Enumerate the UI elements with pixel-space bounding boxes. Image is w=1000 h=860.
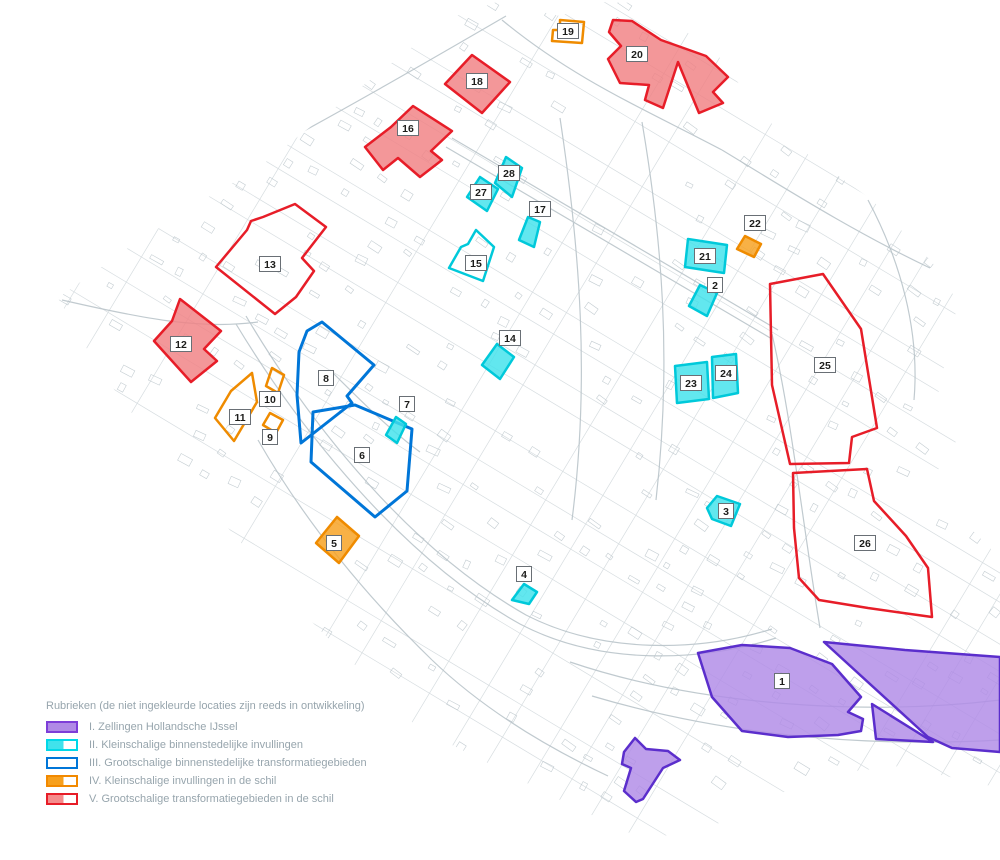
zone-20-shape <box>608 20 728 113</box>
zone-label-22: 22 <box>745 216 766 231</box>
zone-label-15: 15 <box>466 256 487 271</box>
zone-17-shape <box>519 217 540 247</box>
zone-label-7: 7 <box>400 397 415 412</box>
svg-text:22: 22 <box>749 218 761 230</box>
svg-text:5: 5 <box>331 538 337 550</box>
svg-text:21: 21 <box>699 251 711 263</box>
zone-1-shape <box>622 738 680 802</box>
zone-label-14: 14 <box>500 331 521 346</box>
svg-text:19: 19 <box>562 26 574 38</box>
legend-swatch <box>46 757 78 769</box>
zone-22-shape <box>737 236 761 257</box>
zone-label-23: 23 <box>681 376 702 391</box>
zone-label-4: 4 <box>517 567 532 582</box>
zone-label-10: 10 <box>260 392 281 407</box>
svg-text:4: 4 <box>521 569 527 581</box>
svg-text:15: 15 <box>470 258 482 270</box>
svg-text:2: 2 <box>712 280 718 292</box>
svg-text:27: 27 <box>475 187 487 199</box>
legend-row: II. Kleinschalige binnenstedelijke invul… <box>46 738 426 751</box>
zone-label-17: 17 <box>530 202 551 217</box>
svg-text:1: 1 <box>779 676 785 688</box>
legend-row: IV. Kleinschalige invullingen in de schi… <box>46 774 426 787</box>
zone-label-18: 18 <box>467 74 488 89</box>
zone-8-shape <box>297 322 374 443</box>
legend-row: III. Grootschalige binnenstedelijke tran… <box>46 756 426 769</box>
svg-text:16: 16 <box>402 123 414 135</box>
svg-text:17: 17 <box>534 204 546 216</box>
svg-text:10: 10 <box>264 394 276 406</box>
zone-label-16: 16 <box>398 121 419 136</box>
zone-label-20: 20 <box>627 47 648 62</box>
legend-swatch <box>46 721 78 733</box>
zone-label-24: 24 <box>716 366 737 381</box>
zone-label-6: 6 <box>355 448 370 463</box>
svg-text:11: 11 <box>234 412 245 424</box>
svg-text:12: 12 <box>175 339 187 351</box>
legend-item-label: IV. Kleinschalige invullingen in de schi… <box>89 775 276 787</box>
zone-label-25: 25 <box>815 358 836 373</box>
legend-swatch <box>46 775 78 787</box>
legend-item-label: V. Grootschalige transformatiegebieden i… <box>89 793 334 805</box>
zone-label-1: 1 <box>775 674 790 689</box>
zone-label-28: 28 <box>499 166 520 181</box>
zones-layer <box>154 20 1000 802</box>
zone-16-shape <box>365 106 452 177</box>
zone-label-5: 5 <box>327 536 342 551</box>
city-map: 1234567891011121314151617181920212223242… <box>0 0 1000 860</box>
zone-label-8: 8 <box>319 371 334 386</box>
svg-text:9: 9 <box>267 432 273 444</box>
legend: Rubrieken (de niet ingekleurde locaties … <box>46 700 426 810</box>
zone-label-3: 3 <box>719 504 734 519</box>
zone-label-9: 9 <box>263 430 278 445</box>
svg-text:23: 23 <box>685 378 697 390</box>
svg-text:14: 14 <box>504 333 516 345</box>
legend-row: V. Grootschalige transformatiegebieden i… <box>46 792 426 805</box>
legend-title: Rubrieken (de niet ingekleurde locaties … <box>46 700 426 712</box>
zone-4-shape <box>512 584 537 604</box>
legend-item-label: II. Kleinschalige binnenstedelijke invul… <box>89 739 303 751</box>
legend-swatch <box>46 793 78 805</box>
svg-text:25: 25 <box>819 360 831 372</box>
zone-label-27: 27 <box>471 185 492 200</box>
legend-swatch <box>46 739 78 751</box>
legend-rows: I. Zellingen Hollandsche IJssel II. Klei… <box>46 720 426 805</box>
svg-text:24: 24 <box>720 368 732 380</box>
zone-1-shape <box>698 645 863 737</box>
legend-item-label: I. Zellingen Hollandsche IJssel <box>89 721 238 733</box>
svg-text:8: 8 <box>323 373 329 385</box>
svg-text:18: 18 <box>471 76 483 88</box>
zone-label-19: 19 <box>558 24 579 39</box>
zone-label-13: 13 <box>260 257 281 272</box>
zone-label-2: 2 <box>708 278 723 293</box>
legend-item-label: III. Grootschalige binnenstedelijke tran… <box>89 757 367 769</box>
svg-text:3: 3 <box>723 506 729 518</box>
zone-label-11: 11 <box>230 410 251 425</box>
legend-row: I. Zellingen Hollandsche IJssel <box>46 720 426 733</box>
svg-text:7: 7 <box>404 399 410 411</box>
zone-label-12: 12 <box>171 337 192 352</box>
zone-11-shape <box>215 373 257 441</box>
svg-text:28: 28 <box>503 168 515 180</box>
svg-text:13: 13 <box>264 259 276 271</box>
svg-text:26: 26 <box>859 538 871 550</box>
zone-label-21: 21 <box>695 249 716 264</box>
svg-text:6: 6 <box>359 450 365 462</box>
svg-text:20: 20 <box>631 49 643 61</box>
zone-label-26: 26 <box>855 536 876 551</box>
